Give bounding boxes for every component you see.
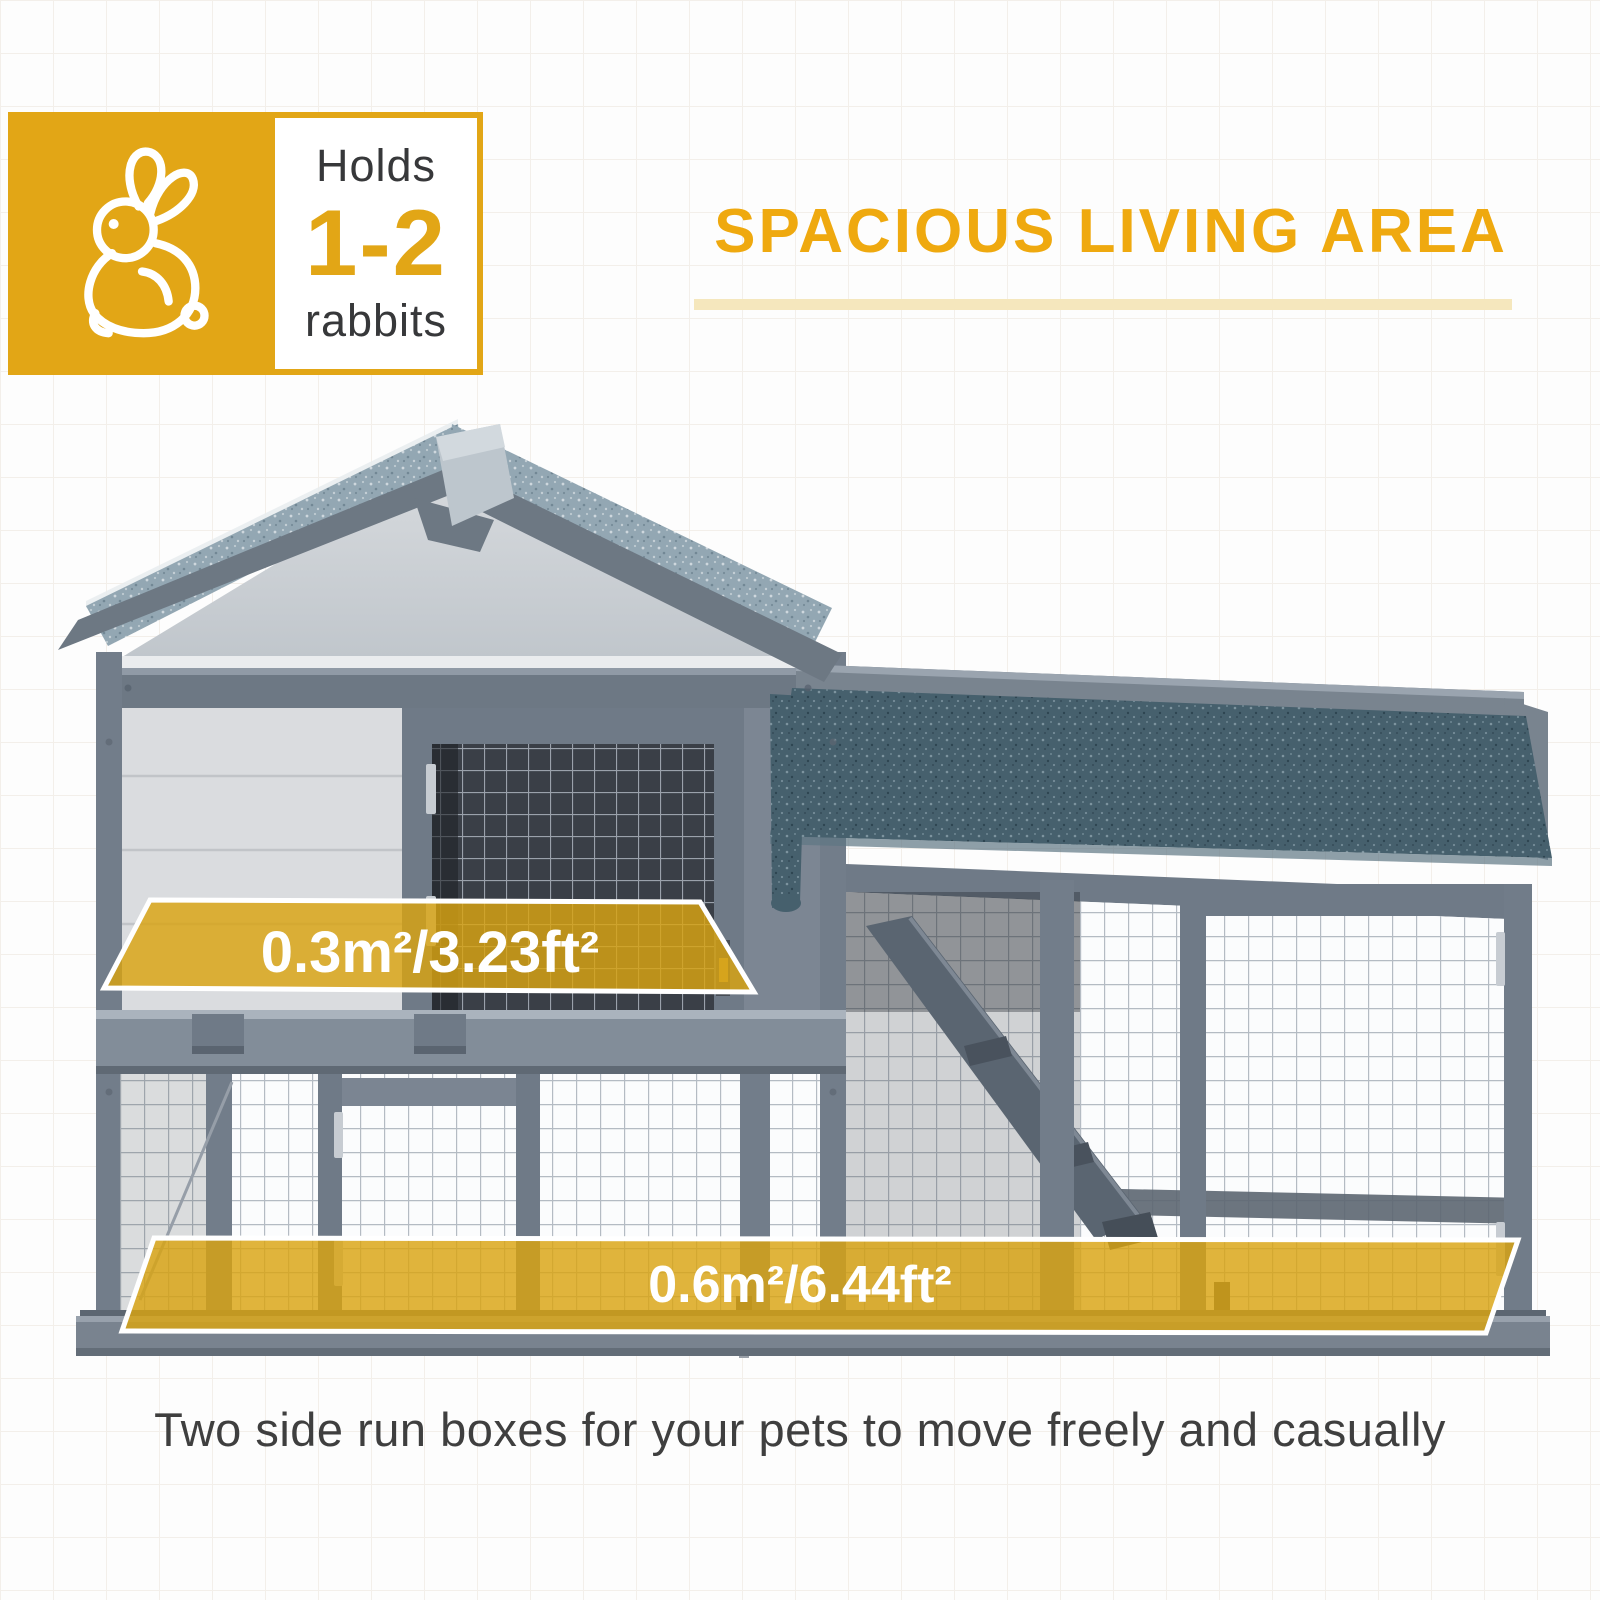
run-door-hinge [1496,932,1505,986]
rabbit-hutch-illustration: 0.3m²/3.23ft² 0.6m²/6.44ft² [0,0,1600,1600]
roof-overhang-edge [770,694,806,908]
drawer-handle [192,1014,244,1050]
upper-door-hinge [426,764,436,814]
asphalt-roof-dark [770,688,1552,858]
lower-door-header [342,1078,516,1106]
lower-area-label: 0.6m²/6.44ft² [648,1256,951,1314]
lower-door-hinge [334,1112,343,1158]
drawer-tray [96,1010,846,1074]
upper-area-label: 0.3m²/3.23ft² [261,920,599,985]
caption-text: Two side run boxes for your pets to move… [0,1402,1600,1457]
infographic-page: Holds 1-2 rabbits SPACIOUS LIVING AREA [0,0,1600,1600]
drawer-handle [414,1014,466,1050]
upper-area-overlay: 0.3m²/3.23ft² [104,900,754,992]
lower-area-overlay: 0.6m²/6.44ft² [122,1238,1518,1333]
